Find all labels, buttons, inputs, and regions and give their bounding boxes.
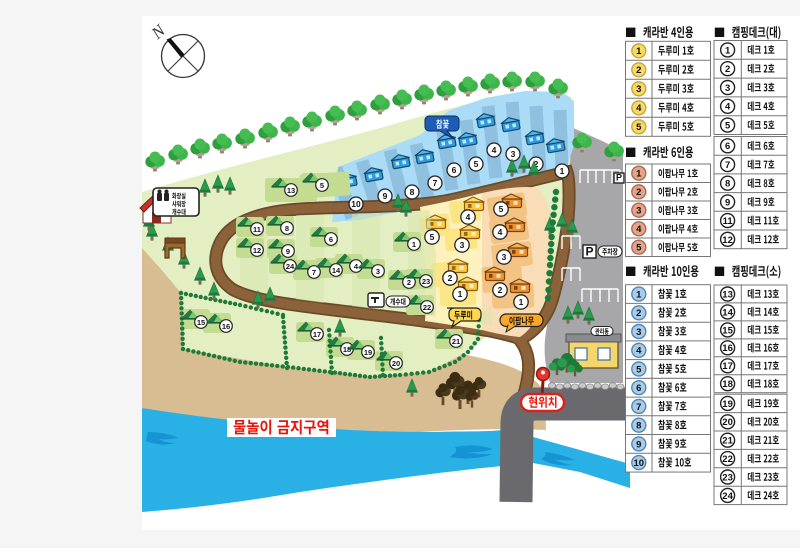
svg-text:9: 9 bbox=[286, 247, 290, 256]
svg-text:1: 1 bbox=[412, 240, 416, 249]
svg-text:24: 24 bbox=[286, 262, 295, 271]
svg-text:11: 11 bbox=[723, 216, 734, 227]
svg-text:13: 13 bbox=[287, 186, 295, 195]
svg-text:3: 3 bbox=[725, 83, 730, 94]
svg-text:23: 23 bbox=[422, 277, 430, 286]
svg-text:16: 16 bbox=[722, 343, 733, 354]
svg-text:5: 5 bbox=[725, 121, 731, 132]
svg-text:1: 1 bbox=[560, 166, 565, 176]
svg-text:4: 4 bbox=[466, 212, 471, 222]
svg-text:2: 2 bbox=[636, 65, 641, 76]
svg-text:7: 7 bbox=[725, 160, 730, 171]
svg-text:P: P bbox=[616, 173, 622, 183]
svg-text:9: 9 bbox=[636, 439, 641, 450]
svg-text:4: 4 bbox=[492, 145, 497, 155]
svg-text:18: 18 bbox=[722, 379, 733, 390]
svg-text:23: 23 bbox=[722, 472, 733, 483]
svg-text:15: 15 bbox=[722, 325, 733, 336]
svg-text:2: 2 bbox=[725, 64, 730, 75]
svg-text:17: 17 bbox=[313, 330, 321, 339]
svg-text:5: 5 bbox=[474, 159, 479, 169]
svg-text:6: 6 bbox=[636, 383, 641, 394]
svg-text:4: 4 bbox=[636, 346, 642, 357]
svg-text:8: 8 bbox=[410, 187, 415, 197]
svg-text:19: 19 bbox=[722, 399, 733, 410]
svg-text:24: 24 bbox=[722, 491, 733, 502]
svg-text:5: 5 bbox=[636, 364, 642, 375]
svg-text:1: 1 bbox=[636, 169, 642, 180]
svg-text:11: 11 bbox=[253, 225, 261, 234]
svg-text:9: 9 bbox=[725, 197, 730, 208]
svg-text:1: 1 bbox=[636, 46, 642, 57]
svg-text:6: 6 bbox=[452, 165, 457, 175]
svg-text:12: 12 bbox=[722, 235, 733, 246]
svg-text:3: 3 bbox=[511, 149, 516, 159]
svg-text:2: 2 bbox=[448, 273, 453, 283]
svg-text:1: 1 bbox=[725, 45, 731, 56]
svg-text:2: 2 bbox=[636, 187, 641, 198]
svg-text:2: 2 bbox=[636, 308, 641, 319]
svg-text:5: 5 bbox=[636, 243, 642, 254]
svg-text:7: 7 bbox=[312, 268, 316, 277]
svg-text:3: 3 bbox=[376, 267, 380, 276]
svg-text:10: 10 bbox=[351, 199, 361, 209]
svg-text:16: 16 bbox=[222, 322, 230, 331]
svg-text:3: 3 bbox=[636, 327, 641, 338]
svg-text:8: 8 bbox=[725, 179, 730, 190]
svg-text:5: 5 bbox=[430, 232, 435, 242]
svg-text:4: 4 bbox=[636, 224, 642, 235]
svg-text:7: 7 bbox=[636, 402, 641, 413]
svg-text:5: 5 bbox=[499, 204, 504, 214]
svg-text:P: P bbox=[585, 245, 593, 259]
svg-text:3: 3 bbox=[636, 84, 641, 95]
svg-text:20: 20 bbox=[392, 359, 400, 368]
svg-text:3: 3 bbox=[636, 206, 641, 217]
svg-text:9: 9 bbox=[383, 191, 388, 201]
svg-text:22: 22 bbox=[722, 454, 733, 465]
svg-text:3: 3 bbox=[502, 252, 507, 262]
svg-text:21: 21 bbox=[722, 436, 733, 447]
svg-text:1: 1 bbox=[636, 290, 642, 301]
svg-text:4: 4 bbox=[725, 102, 731, 113]
svg-text:1: 1 bbox=[519, 297, 524, 307]
svg-text:6: 6 bbox=[725, 141, 730, 152]
svg-text:22: 22 bbox=[423, 303, 431, 312]
svg-text:6: 6 bbox=[329, 235, 333, 244]
svg-text:7: 7 bbox=[433, 178, 438, 188]
svg-text:19: 19 bbox=[364, 348, 372, 357]
svg-text:8: 8 bbox=[285, 224, 289, 233]
svg-text:14: 14 bbox=[722, 307, 733, 318]
svg-text:14: 14 bbox=[332, 266, 341, 275]
svg-text:12: 12 bbox=[253, 246, 261, 255]
svg-text:4: 4 bbox=[498, 227, 503, 237]
svg-text:17: 17 bbox=[722, 361, 733, 372]
svg-text:1: 1 bbox=[458, 289, 463, 299]
svg-text:5: 5 bbox=[320, 181, 324, 190]
svg-text:5: 5 bbox=[636, 122, 642, 133]
svg-text:3: 3 bbox=[460, 240, 465, 250]
svg-text:8: 8 bbox=[636, 421, 641, 432]
svg-text:4: 4 bbox=[636, 103, 642, 114]
svg-text:2: 2 bbox=[407, 278, 411, 287]
svg-text:15: 15 bbox=[197, 318, 205, 327]
svg-text:2: 2 bbox=[498, 285, 503, 295]
svg-text:21: 21 bbox=[452, 337, 460, 346]
svg-text:13: 13 bbox=[722, 289, 733, 300]
svg-text:10: 10 bbox=[634, 458, 645, 469]
svg-text:20: 20 bbox=[722, 417, 733, 428]
